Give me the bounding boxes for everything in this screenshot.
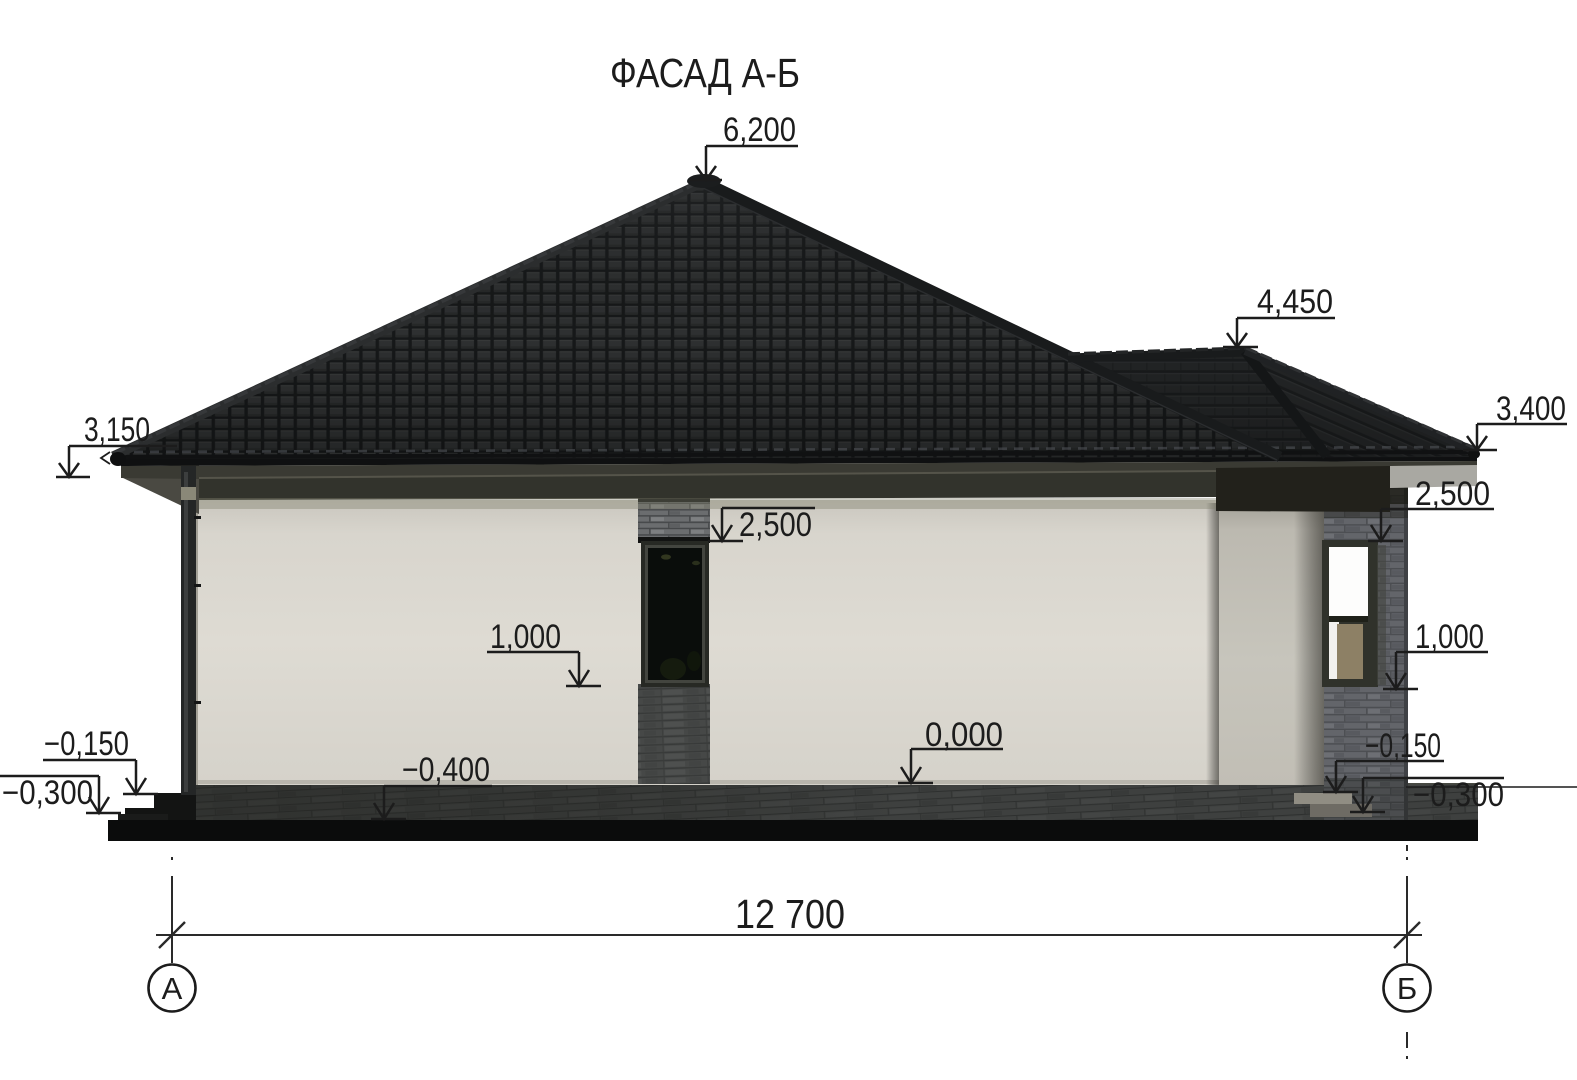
svg-text:−0,150: −0,150 (1365, 727, 1441, 765)
svg-text:−0,300: −0,300 (2, 774, 93, 812)
svg-text:ФАСАД А-Б: ФАСАД А-Б (610, 50, 800, 96)
svg-text:1,000: 1,000 (1415, 618, 1484, 656)
svg-text:2,500: 2,500 (1415, 475, 1490, 513)
svg-text:3,400: 3,400 (1496, 390, 1566, 428)
svg-text:−0,300: −0,300 (1413, 776, 1504, 814)
svg-text:2,500: 2,500 (739, 506, 812, 544)
svg-text:1,000: 1,000 (490, 618, 561, 656)
svg-text:−0,400: −0,400 (402, 751, 490, 789)
svg-text:6,200: 6,200 (723, 111, 796, 149)
svg-text:3,150: 3,150 (84, 411, 150, 449)
svg-text:4,450: 4,450 (1257, 283, 1333, 321)
svg-text:12 700: 12 700 (735, 891, 845, 937)
svg-text:Б: Б (1397, 971, 1417, 1006)
svg-text:−0,150: −0,150 (44, 725, 129, 763)
svg-text:А: А (162, 971, 183, 1006)
svg-text:0,000: 0,000 (925, 716, 1003, 754)
